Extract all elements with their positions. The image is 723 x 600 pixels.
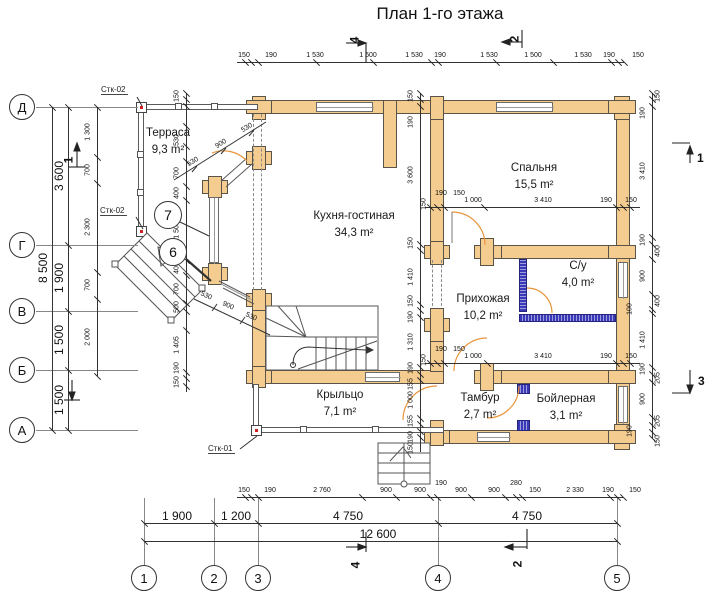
dim-label: 1 310 <box>408 333 415 351</box>
dim-label: 1 500 <box>52 385 66 415</box>
room-name: Спальня <box>511 162 557 174</box>
dim-label: 1 530 <box>306 52 324 59</box>
grid-axis-circle: 4 <box>425 565 451 591</box>
log-post <box>608 100 636 114</box>
dim-label: 530 <box>174 134 181 146</box>
room-name: Бойлерная <box>537 393 596 405</box>
room-name: Тамбур <box>460 392 499 404</box>
callout-circle: 7 <box>154 201 182 229</box>
room-area: 10,2 m² <box>464 310 503 322</box>
grid-axis-line <box>144 498 145 565</box>
section-number: 1 <box>697 151 704 165</box>
log-post <box>430 308 444 342</box>
dim-label: 1 530 <box>480 52 498 59</box>
terrace-wall-left <box>138 104 144 232</box>
dim-label: 190 <box>265 52 277 59</box>
dim-label: 2 000 <box>85 328 92 346</box>
dim-label: 150 <box>408 237 415 249</box>
dim-label: 400 <box>655 295 662 307</box>
wall-grid4-lower <box>430 340 444 372</box>
dim-label: 1 500 <box>524 52 542 59</box>
room-area: 2,7 m² <box>464 409 497 421</box>
opening-dashed <box>253 114 254 290</box>
dim-label: 205 <box>655 372 662 384</box>
boiler-partition-stub <box>517 420 530 431</box>
log-post <box>252 289 266 311</box>
post <box>211 103 218 110</box>
log-post <box>252 146 266 170</box>
window <box>618 386 628 423</box>
dim-label: 12 600 <box>360 527 397 541</box>
dim-label: 1 000 <box>464 353 482 360</box>
section-number: 2 <box>507 36 521 43</box>
grid-axis-circle: А <box>9 417 35 443</box>
section-number: 4 <box>348 562 362 569</box>
dim-label: 900 <box>380 487 392 494</box>
dim-label: 190 <box>435 480 447 487</box>
post <box>137 189 144 196</box>
window <box>496 102 553 112</box>
dim-chain-line <box>97 107 98 376</box>
porch-wall-bottom <box>253 427 444 433</box>
room-area: 4,0 m² <box>562 277 595 289</box>
dim-label: 700 <box>85 164 92 176</box>
stk-post <box>251 425 262 436</box>
wall-bedroom-south <box>484 245 616 259</box>
wall-hall-south <box>487 370 616 384</box>
dim-label: 150 <box>453 190 465 197</box>
floor-plan-canvas: План 1-го этажа <box>0 0 723 600</box>
room-area: 34,3 m² <box>335 227 374 239</box>
dim-label: 4 750 <box>512 509 542 523</box>
grid-axis-circle: 3 <box>245 565 271 591</box>
opening-dashed <box>261 114 262 290</box>
dim-label: 4 750 <box>333 509 363 523</box>
wall-porch-top <box>252 370 444 384</box>
dim-label: 900 <box>488 487 500 494</box>
dim-label: 190 <box>627 425 634 437</box>
dim-label: 150 <box>655 435 662 447</box>
dim-chain-line <box>425 363 640 364</box>
dim-label: 150 <box>238 487 250 494</box>
dim-label: 150 <box>174 90 181 102</box>
dim-label: 150 <box>408 295 415 307</box>
dim-label: 3 410 <box>534 353 552 360</box>
drawing-title: План 1-го этажа <box>376 4 503 24</box>
room-area: 7,1 m² <box>324 406 357 418</box>
log-post <box>208 263 222 285</box>
dim-label: 1 000 <box>408 391 415 409</box>
dim-label: 150 <box>408 442 415 454</box>
dim-label: 900 <box>640 393 647 405</box>
dim-chain-line <box>186 93 187 392</box>
window <box>618 262 628 298</box>
dim-label: 500 <box>174 301 181 313</box>
post <box>137 151 144 158</box>
grid-axis-circle: 5 <box>604 565 630 591</box>
dim-label: 3 600 <box>408 166 415 184</box>
dim-chain-line <box>420 93 421 452</box>
dim-label: 700 <box>85 279 92 291</box>
window <box>209 197 219 263</box>
dim-label: 190 <box>602 487 614 494</box>
dim-label: 3 410 <box>640 162 647 180</box>
stk-post <box>136 226 147 237</box>
dim-label: 1 410 <box>640 331 647 349</box>
log-post <box>208 176 222 198</box>
dim-label: 190 <box>640 234 647 246</box>
dim-label: 190 <box>600 197 612 204</box>
dim-label: 1 530 <box>574 52 592 59</box>
dim-label: 280 <box>510 480 522 487</box>
post <box>372 426 379 433</box>
dim-label: 1 530 <box>405 52 423 59</box>
dim-label: 700 <box>174 167 181 179</box>
dim-label: 150 <box>453 346 465 353</box>
log-post <box>480 363 494 391</box>
log-post <box>430 420 444 446</box>
window <box>477 432 510 442</box>
dim-label: 150 <box>421 198 428 210</box>
stamp-label: Стк-01 <box>208 444 235 454</box>
dim-label: 150 <box>174 376 181 388</box>
dim-label: 150 <box>655 90 662 102</box>
dim-label: 190 <box>408 362 415 374</box>
grid-axis-line <box>258 498 259 565</box>
dim-label: 205 <box>655 415 662 427</box>
wall-grid4-upper <box>430 114 444 245</box>
dim-label-diagonal: 900 <box>221 300 235 311</box>
grid-axis-line <box>617 498 618 565</box>
dim-label: 190 <box>408 311 415 323</box>
dim-label: 3 600 <box>52 161 66 191</box>
grid-axis-circle: Г <box>9 232 35 258</box>
dim-label: 150 <box>421 354 428 366</box>
grid-axis-circle: Б <box>9 357 35 383</box>
dim-label: 100 <box>627 303 634 315</box>
section-number: 3 <box>698 374 705 388</box>
dim-label: 1 500 <box>52 325 66 355</box>
grid-axis-circle: 1 <box>131 565 157 591</box>
window <box>316 102 373 112</box>
dim-label: 1 300 <box>85 123 92 141</box>
wall-bottom-right <box>430 430 630 444</box>
dim-label-diagonal: 900 <box>214 138 228 150</box>
callout-circle: 6 <box>159 238 187 266</box>
grid-axis-line <box>214 498 215 565</box>
post <box>175 103 182 110</box>
dim-label-diagonal: 530 <box>240 122 254 134</box>
dim-label: 2 760 <box>313 487 331 494</box>
opening-dashed <box>432 260 433 306</box>
window <box>365 372 400 382</box>
dim-label: 190 <box>408 116 415 128</box>
grid-axis-circle: В <box>9 298 35 324</box>
dim-label: 150 <box>629 487 641 494</box>
dim-label: 150 <box>408 90 415 102</box>
room-name: Крыльцо <box>317 389 364 401</box>
dim-label: 3 410 <box>534 197 552 204</box>
section-number: 4 <box>347 37 361 44</box>
dim-label: 1 405 <box>174 336 181 354</box>
grid-axis-line <box>438 498 439 565</box>
porch-stair <box>378 443 430 487</box>
stamp-label: Стк-02 <box>101 85 128 95</box>
dim-label: 700 <box>174 283 181 295</box>
log-post <box>430 96 444 120</box>
dim-label: 190 <box>435 346 447 353</box>
dim-label: 400 <box>174 187 181 199</box>
dim-label: 155 <box>408 415 415 427</box>
dim-label: 150 <box>632 52 644 59</box>
post <box>300 426 307 433</box>
dim-label: 1 410 <box>408 268 415 286</box>
dim-chain-line <box>425 207 640 208</box>
log-post <box>480 238 494 266</box>
dim-label: 2 330 <box>566 487 584 494</box>
section-number: 1 <box>61 157 75 164</box>
dim-label: 190 <box>600 353 612 360</box>
dim-label: 1 200 <box>221 509 251 523</box>
dim-label: 190 <box>434 52 446 59</box>
dim-label-diagonal: 530 <box>199 290 213 301</box>
dim-label: 190 <box>603 52 615 59</box>
dim-label: 150 <box>625 353 637 360</box>
dim-chain-line <box>652 93 653 438</box>
section-number: 2 <box>510 561 524 568</box>
dim-label: 190 <box>174 362 181 374</box>
dim-label: 150 <box>238 52 250 59</box>
log-post <box>608 245 636 259</box>
dim-label: 1 900 <box>162 509 192 523</box>
dim-label: 190 <box>640 107 647 119</box>
room-area: 15,5 m² <box>515 179 554 191</box>
dim-label: 8 500 <box>36 253 50 283</box>
grid-axis-circle: 2 <box>201 565 227 591</box>
room-name: С/у <box>569 260 586 272</box>
dim-label: 900 <box>414 487 426 494</box>
dim-label: 400 <box>655 245 662 257</box>
room-name: Прихожая <box>456 293 509 305</box>
dim-label: 1 000 <box>464 197 482 204</box>
dim-label: 1 900 <box>52 263 66 293</box>
dim-label: 190 <box>264 487 276 494</box>
dim-label: 155 <box>408 378 415 390</box>
dim-label: 900 <box>455 487 467 494</box>
stamp-label: Стк-02 <box>100 206 127 216</box>
grid-axis-circle: Д <box>9 94 35 120</box>
terrace-wall-top <box>140 104 258 110</box>
room-area: 3,1 m² <box>550 410 583 422</box>
dim-label: 900 <box>640 270 647 282</box>
interior-stair <box>266 306 378 370</box>
room-name: Терраса <box>146 127 190 139</box>
dim-label: 1 500 <box>359 52 377 59</box>
terrace-stair <box>112 233 205 323</box>
room-name: Кухня-гостиная <box>313 210 394 222</box>
dim-label: 190 <box>640 363 647 375</box>
porch-wall-left <box>253 384 259 430</box>
dim-chain-line <box>144 541 617 542</box>
dim-label: 150 <box>529 487 541 494</box>
dim-label: 190 <box>435 190 447 197</box>
opening-dashed <box>441 260 442 306</box>
boiler-partition-stub <box>517 384 530 394</box>
dim-label: 150 <box>625 197 637 204</box>
wc-partition-horizontal <box>519 314 616 322</box>
wall-stub-top <box>383 100 397 168</box>
dim-label: 2 300 <box>85 218 92 236</box>
log-post <box>608 370 636 384</box>
wc-partition-vertical <box>519 259 527 312</box>
dim-label-diagonal: 530 <box>186 156 200 168</box>
